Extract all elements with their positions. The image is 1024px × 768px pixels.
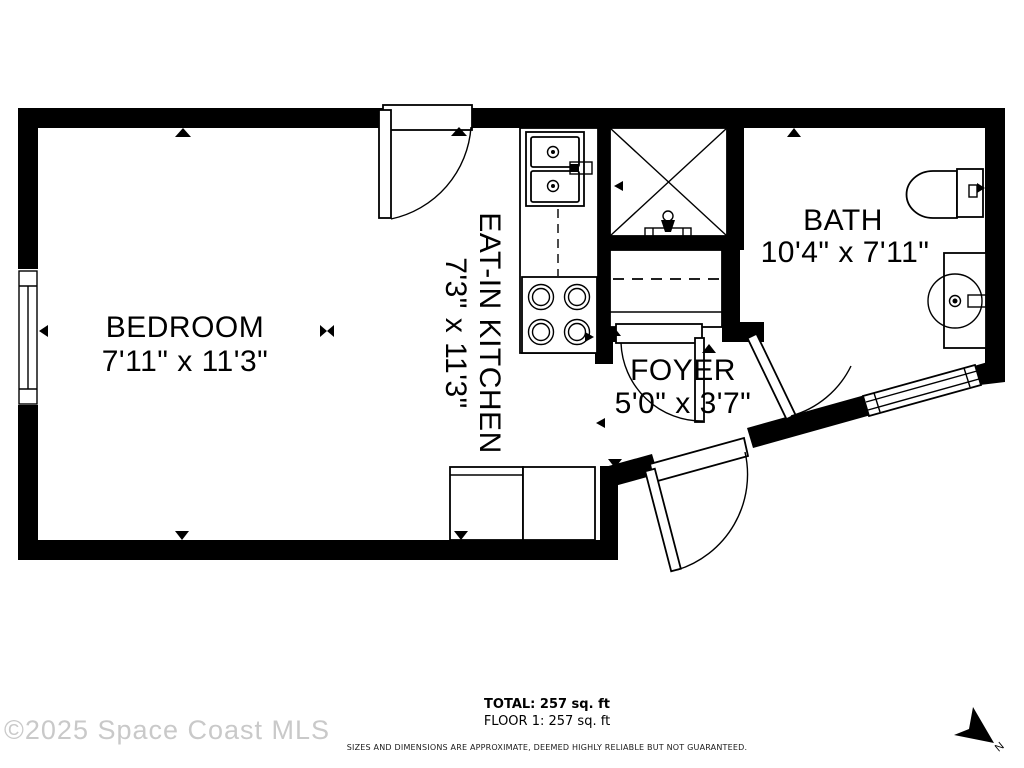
- kitchen-sink-icon: [526, 132, 592, 206]
- watermark: ©2025 Space Coast MLS: [4, 715, 330, 746]
- stove-icon: [522, 277, 597, 353]
- kitchen-counter: [520, 128, 598, 353]
- bath-dimensions: 10'4" x 7'11": [761, 236, 930, 269]
- refrigerator-icon: [450, 467, 523, 540]
- wall-left-upper: [18, 108, 38, 271]
- bedroom-door-swing-arc: [391, 127, 471, 219]
- bath-sink-icon: [928, 253, 986, 348]
- wall-top: [18, 108, 1005, 128]
- bedroom-window: [14, 269, 42, 405]
- bedroom-door-leaf: [379, 110, 391, 218]
- kitchen-label: EAT-IN KITCHEN: [473, 212, 506, 453]
- wall-right: [985, 108, 1005, 382]
- floor-plan-drawing: BEDROOM 7'11" x 11'3" EAT-IN KITCHEN 7'3…: [0, 0, 1024, 768]
- wall-diagonal-b: [747, 395, 871, 448]
- entry-door-leaf: [645, 469, 681, 572]
- wall-shower-right: [727, 128, 744, 250]
- bath-window: [863, 365, 981, 416]
- total-area-text: TOTAL: 257 sq. ft: [70, 697, 1024, 712]
- floor-plan-page: BEDROOM 7'11" x 11'3" EAT-IN KITCHEN 7'3…: [0, 0, 1024, 768]
- wall-bottom: [18, 540, 618, 560]
- foyer-dimensions: 5'0" x 3'7": [615, 387, 752, 420]
- bedroom-door-opening: [383, 105, 472, 130]
- entry-door-opening: [650, 438, 748, 482]
- kitchen-dimensions: 7'3" x 11'3": [439, 257, 472, 409]
- bath-label: BATH: [803, 204, 883, 237]
- bedroom-door: [379, 105, 472, 219]
- wall-left-lower: [18, 403, 38, 560]
- appliance-box: [523, 467, 595, 540]
- bedroom-dimensions: 7'11" x 11'3": [102, 345, 269, 378]
- closet-door-panel: [616, 324, 702, 343]
- bath-door-leaf: [748, 334, 796, 419]
- entry-door: [645, 438, 748, 571]
- foyer-label: FOYER: [630, 354, 736, 387]
- wall-shower-bottom: [595, 236, 744, 250]
- shower-icon: [610, 128, 727, 237]
- bedroom-label: BEDROOM: [106, 311, 265, 344]
- toilet-icon: [907, 169, 983, 218]
